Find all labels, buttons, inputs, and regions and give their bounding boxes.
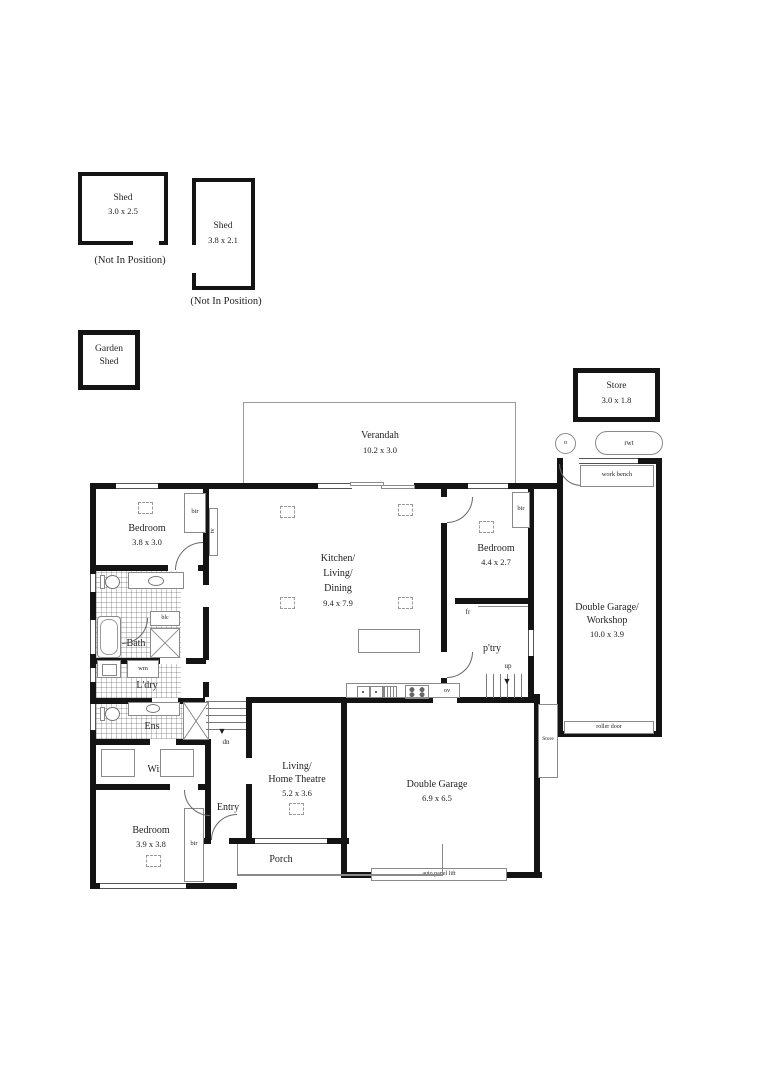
garage-size: 6.9 x 6.5 (396, 793, 478, 803)
entry-label: Entry (206, 802, 250, 814)
stair-arrow-icon: ▼ (500, 676, 514, 687)
door-arc (447, 652, 473, 678)
vent-label: o (555, 439, 576, 447)
downlight-icon (146, 855, 161, 867)
sink-drain (375, 691, 377, 693)
wall (78, 172, 168, 176)
verandah-label: Verandah (330, 430, 430, 442)
downlight-icon (398, 597, 413, 609)
sink-icon (370, 686, 383, 698)
shed1-size: 3.0 x 2.5 (83, 206, 163, 216)
verandah-size: 10.2 x 3.0 (330, 445, 430, 455)
door-opening (150, 739, 176, 745)
bedroom3-size: 3.9 x 3.8 (111, 839, 191, 849)
robe-shelf (101, 749, 135, 777)
garden-shed-name-line1: Garden (80, 344, 138, 355)
bir-label: bir (184, 508, 206, 516)
trough-bowl (102, 664, 117, 676)
downlight-icon (479, 521, 494, 533)
wall (573, 417, 660, 422)
living-size: 5.2 x 3.6 (257, 788, 337, 798)
downlight-icon (289, 803, 304, 815)
fridge-label: fr (459, 608, 477, 616)
shed1-note: (Not In Position) (70, 255, 190, 268)
door-opening (203, 585, 209, 607)
floor-plan: Shed 3.0 x 2.5 (Not In Position) Shed 3.… (0, 0, 764, 1080)
work-bench-label: work bench (580, 471, 654, 479)
kitchen-label-line1: Kitchen/ (298, 553, 378, 565)
wall (78, 330, 140, 335)
stair-arrow-icon: ▼ (215, 726, 229, 737)
toilet-icon (105, 575, 120, 589)
wall (534, 483, 559, 489)
window (528, 630, 534, 656)
rwt-label: rwt (595, 439, 663, 447)
bedroom2-size: 4.4 x 2.7 (456, 557, 536, 567)
bathtub-inner (100, 619, 118, 655)
bir-label: bir (184, 840, 204, 848)
garden-shed-name-line2: Shed (80, 357, 138, 368)
downlight-icon (280, 597, 295, 609)
living-label-line2: Home Theatre (247, 774, 347, 786)
shed2-note: (Not In Position) (166, 296, 286, 309)
workshop-label-line2: Workshop (559, 615, 655, 627)
kitchen-label-line2: Living/ (298, 568, 378, 580)
window (318, 483, 352, 489)
downlight-icon (398, 504, 413, 516)
workshop-label-line1: Double Garage/ (559, 602, 655, 614)
shed2-size: 3.8 x 2.1 (194, 235, 252, 245)
sliding-door-panel (350, 482, 384, 486)
bedroom3-label: Bedroom (111, 825, 191, 837)
wm-label: wm (127, 665, 159, 673)
store-side-label: Store (536, 736, 560, 743)
downlight-icon (280, 506, 295, 518)
shower-icon (150, 628, 180, 658)
shed1-name: Shed (83, 193, 163, 204)
living-label-line1: Living/ (257, 761, 337, 773)
wall (192, 286, 255, 290)
pantry-shelf (478, 604, 528, 607)
verandah-outline (243, 402, 516, 484)
wall (192, 178, 255, 182)
bedroom1-label: Bedroom (107, 523, 187, 535)
porch-outline (237, 844, 443, 876)
downlight-icon (138, 502, 153, 514)
kitchen-label-line3: Dining (298, 583, 378, 595)
wall (573, 368, 660, 373)
bedroom2-label: Bedroom (456, 543, 536, 555)
dn-label: dn (211, 738, 241, 746)
drainer-icon (383, 686, 397, 698)
shed2-name: Shed (194, 221, 252, 232)
bathtub-icon (97, 616, 121, 658)
bir-label: bir (512, 505, 530, 513)
door-opening (191, 245, 197, 273)
sink-icon (357, 686, 370, 698)
pantry-label: p'try (472, 643, 512, 655)
laundry-trough (97, 660, 121, 678)
island-bench (358, 629, 420, 653)
wall (164, 172, 168, 245)
roller-door-label: roller door (564, 724, 654, 731)
door-opening (133, 240, 159, 246)
wall (192, 178, 196, 290)
garage-label: Double Garage (396, 779, 478, 791)
wall (656, 458, 662, 737)
bedroom1-size: 3.8 x 3.0 (107, 537, 187, 547)
window (578, 458, 638, 464)
sliding-door-panel (381, 485, 415, 489)
up-label: up (497, 662, 519, 670)
sink-drain (362, 691, 364, 693)
basin-icon (146, 704, 160, 713)
door-arc (447, 497, 473, 523)
blc-label: blc (150, 615, 180, 622)
door-arc (211, 814, 237, 840)
cooktop-icon (405, 685, 429, 699)
wall (78, 385, 140, 390)
wall (557, 458, 563, 731)
robe-shelf (160, 749, 194, 777)
oven-label: ov (436, 687, 458, 695)
basin-icon (148, 576, 164, 586)
wall (251, 178, 255, 290)
window (468, 483, 508, 489)
workshop-size: 10.0 x 3.9 (559, 629, 655, 639)
wall (78, 172, 82, 245)
window (100, 883, 186, 889)
kitchen-size: 9.4 x 7.9 (298, 598, 378, 608)
store-top-size: 3.0 x 1.8 (575, 395, 658, 405)
store-top-name: Store (575, 381, 658, 392)
toilet-icon (105, 707, 120, 721)
tv-label: tv (209, 520, 217, 542)
window (116, 483, 158, 489)
